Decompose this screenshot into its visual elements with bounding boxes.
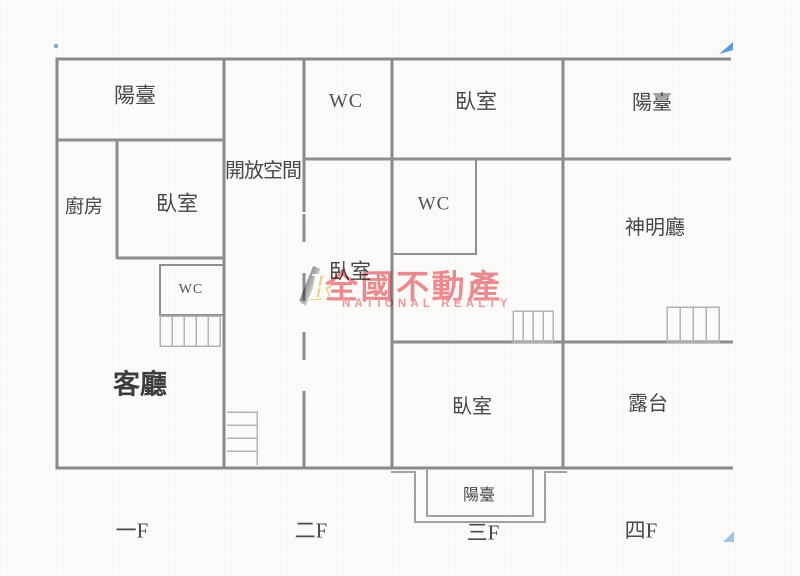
- room-label-balcony-4f: 陽臺: [632, 93, 672, 113]
- room-label-wc-3f: WC: [418, 195, 451, 214]
- room-label-open-space: 開放空間: [225, 161, 301, 181]
- room-label-terrace: 露台: [628, 394, 668, 414]
- room-label-living-room: 客廳: [113, 372, 167, 399]
- room-label-wc-1f: WC: [179, 283, 204, 297]
- room-label-bedroom-3f-top: 臥室: [455, 92, 497, 113]
- stairs-2f: [227, 412, 257, 465]
- room-label-kitchen: 廚房: [65, 198, 103, 217]
- room-label-bedroom-3f: 臥室: [452, 397, 492, 417]
- room-label-bedroom-1f: 臥室: [156, 194, 198, 215]
- floor-label-3f: 三F: [467, 523, 500, 544]
- floor-label-4f: 四F: [625, 521, 658, 542]
- stairs-4f: [667, 307, 719, 342]
- stairs-1f: [160, 316, 220, 346]
- stairs-3f: [513, 311, 553, 342]
- floor-label-2f: 二F: [295, 521, 328, 542]
- floor-plan-page: 陽臺 WC 臥室 陽臺 開放空間 廚房 臥室 WC 神明廳 WC 臥室 臥室 露…: [0, 0, 800, 576]
- room-label-shrine-hall: 神明廳: [625, 218, 685, 238]
- room-label-balcony-1f: 陽臺: [114, 86, 156, 107]
- room-label-wc-2f: WC: [329, 91, 363, 111]
- national-realty-watermark: R 全國不動產 NATIONAL REALTY: [292, 259, 527, 314]
- blue-speck-artifact: [54, 44, 58, 48]
- room-label-balcony-3f: 陽臺: [463, 488, 495, 504]
- watermark-subtitle: NATIONAL REALTY: [342, 298, 512, 310]
- floor-label-1f: 一F: [116, 521, 149, 542]
